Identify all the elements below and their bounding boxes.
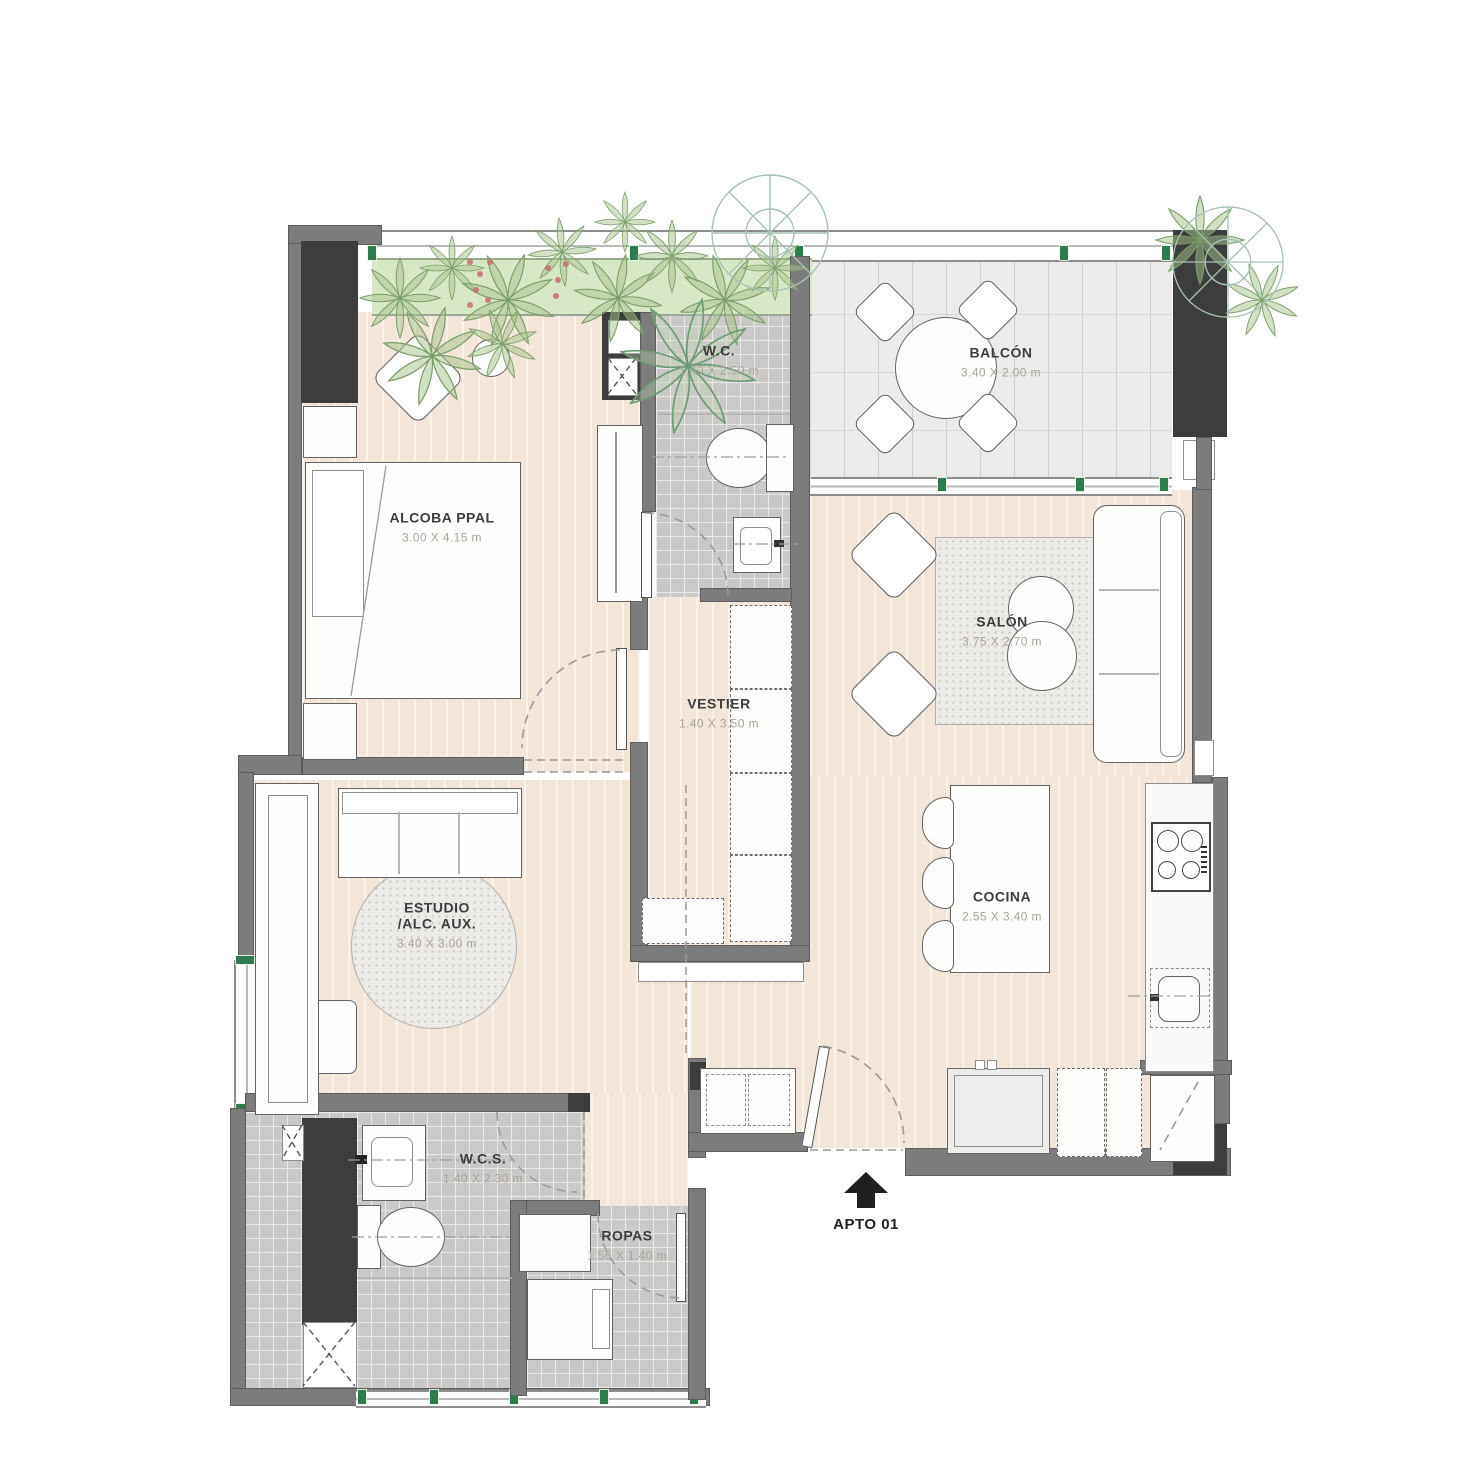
railing-mullion [938, 478, 946, 491]
room-dims: 3.75 X 2.70 m [962, 635, 1042, 649]
shoe-cabinet-inner [748, 1074, 790, 1126]
sofa-seam [1099, 589, 1159, 591]
wall-segment [700, 588, 792, 602]
stove-burner [1157, 830, 1179, 852]
stove-burner [1181, 830, 1203, 852]
stove-burner [1158, 861, 1176, 879]
room-label-alcoba: ALCOBA PPAL 3.00 X 4.15 m [389, 510, 494, 545]
planter [372, 258, 812, 316]
railing-mullion [1160, 478, 1168, 491]
room-label-estudio: ESTUDIO /ALC. AUX. 3.40 X 3.00 m [397, 900, 477, 951]
shaft-x [282, 1125, 304, 1161]
balcony-railing [800, 477, 1172, 496]
wall-segment [230, 1108, 246, 1406]
hall-bench [638, 962, 804, 982]
wall-niche [1194, 740, 1214, 776]
cabinet-module [1057, 1068, 1105, 1157]
room-label-ropas: ROPAS 1.56 X 1.40 m [587, 1228, 667, 1263]
wall-segment [688, 1132, 808, 1152]
toilet-bowl [706, 428, 772, 488]
sink-basin [740, 527, 772, 565]
window-mullion [630, 246, 638, 260]
room-dims: 3.40 X 2.00 m [961, 366, 1041, 380]
room-name: SALÓN [962, 614, 1042, 630]
room-label-salon: SALÓN 3.75 X 2.70 m [962, 614, 1042, 649]
door-leaf-ropas [676, 1213, 686, 1302]
sofa-seam [458, 812, 460, 874]
room-dims: 1.56 X 1.40 m [587, 1249, 667, 1263]
washer-panel [592, 1289, 610, 1349]
room-name: BALCÓN [961, 345, 1041, 361]
sofa-back [1160, 511, 1182, 757]
nightstand [303, 406, 357, 458]
side-table [472, 339, 510, 377]
sofa-seam [398, 812, 400, 874]
room-name: VESTIER [679, 696, 759, 712]
closet-module [730, 605, 792, 689]
room-dims: 3.40 X 3.00 m [397, 937, 477, 951]
window-mullion [368, 246, 376, 260]
closet-module [730, 773, 792, 855]
wall-segment [630, 945, 810, 962]
wall-segment [1192, 487, 1212, 783]
room-name: ALCOBA PPAL [389, 510, 494, 526]
window-mullion [1162, 246, 1170, 260]
window-mullion [358, 1390, 366, 1404]
sofa-back [342, 792, 518, 814]
wall-segment [688, 1188, 706, 1400]
wall-segment [1212, 777, 1228, 1080]
wall-segment [288, 243, 302, 775]
wardrobe-line [615, 432, 617, 593]
cabinet-module [1106, 1068, 1142, 1157]
tall-closet-inner [268, 795, 308, 1103]
kitchen-island [950, 785, 1050, 973]
door-leaf-alcoba [616, 648, 627, 750]
wall-segment [630, 596, 648, 650]
faucet [355, 1155, 367, 1164]
faucet [1150, 994, 1159, 1001]
wardrobe [597, 425, 643, 602]
wall-segment [790, 256, 810, 962]
sofa-seam [1099, 673, 1159, 675]
room-dims: 1.40 X 2.30 m [443, 1172, 523, 1186]
shoe-cabinet-inner [706, 1074, 746, 1126]
entry-closet [1150, 1075, 1215, 1162]
room-label-wcs: W.C.S. 1.40 X 2.30 m [443, 1151, 523, 1186]
entrance-arrow-icon [816, 1172, 916, 1208]
room-name: COCINA [962, 889, 1042, 905]
room-name: ESTUDIO [397, 900, 477, 916]
window-mullion [236, 956, 254, 964]
stove-knobs [1201, 845, 1207, 873]
window-mullion [1060, 246, 1068, 260]
room-name: W.C.S. [443, 1151, 523, 1167]
room-name: /ALC. AUX. [397, 916, 477, 932]
room-dims: 1.40 X 2.50 m [679, 364, 759, 378]
washer [519, 1214, 591, 1272]
room-dims: 3.00 X 4.15 m [389, 531, 494, 545]
sink-basin [371, 1137, 413, 1187]
wall-column [1173, 230, 1227, 437]
window-mullion [430, 1390, 438, 1404]
bed-pillow [312, 470, 364, 617]
toilet-tank [766, 424, 794, 492]
entrance-marker: APTO 01 [816, 1172, 916, 1233]
room-label-wc: W.C. 1.40 X 2.50 m [679, 343, 759, 378]
window-mullion [600, 1390, 608, 1404]
stove-burner [1182, 861, 1200, 879]
room-name: W.C. [679, 343, 759, 359]
wall-column [302, 1118, 357, 1325]
window-band-bottom [356, 1390, 706, 1408]
shaft-x [608, 358, 638, 396]
room-label-balcon: BALCÓN 3.40 X 2.00 m [961, 345, 1041, 380]
floor-plan: ALCOBA PPAL 3.00 X 4.15 m W.C. 1.40 X 2.… [0, 0, 1482, 1466]
room-label-cocina: COCINA 2.55 X 3.40 m [962, 889, 1042, 924]
nightstand [303, 703, 357, 760]
fridge-handle [975, 1060, 985, 1070]
railing-mullion [1076, 478, 1084, 491]
toilet-bowl [377, 1207, 445, 1267]
kitchen-sink [1158, 976, 1200, 1022]
faucet [774, 540, 784, 547]
wall-column [301, 241, 358, 403]
fridge-handle [987, 1060, 997, 1070]
closet-module [642, 898, 724, 944]
room-dims: 2.55 X 3.40 m [962, 910, 1042, 924]
room-dims: 1.40 X 3.50 m [679, 717, 759, 731]
wall-jamb [568, 1093, 590, 1112]
wall-segment [1196, 437, 1212, 490]
floor-hall [575, 1093, 688, 1208]
shaft-x [303, 1322, 357, 1388]
room-name: ROPAS [587, 1228, 667, 1244]
door-leaf-wc [641, 512, 652, 598]
fridge-inner [954, 1075, 1043, 1147]
closet-module [730, 855, 792, 942]
unit-label: APTO 01 [816, 1216, 916, 1233]
room-label-vestier: VESTIER 1.40 X 3.50 m [679, 696, 759, 731]
